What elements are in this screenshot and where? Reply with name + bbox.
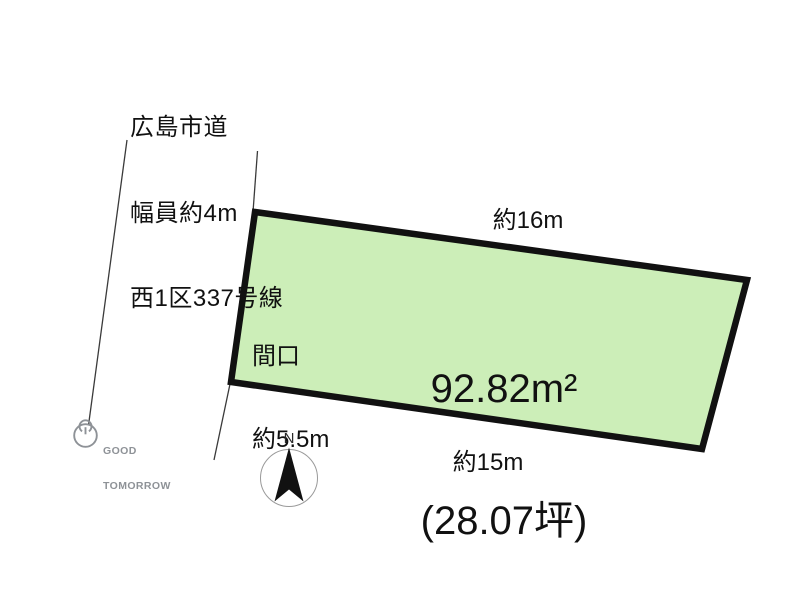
good-tomorrow-logo-icon — [74, 420, 97, 446]
land-plot-diagram: 広島市道 幅員約4m 西1区337号線 約16m 間口 約5.5m 92.82m… — [0, 0, 800, 589]
logo-text: GOOD TOMORROW — [103, 423, 171, 515]
top-dimension-label: 約16m — [448, 200, 608, 235]
road-label-line2: 幅員約4m — [130, 200, 283, 229]
plot-area-m2: 92.82m² — [354, 367, 654, 411]
frontage-label-block: 間口 約5.5m — [252, 288, 329, 508]
plot-area-label: 92.82m² (28.07坪) — [354, 279, 654, 589]
logo-text-line2: TOMORROW — [103, 481, 171, 493]
bottom-dimension-label: 約15m — [408, 442, 568, 477]
road-edge-line-left — [88, 140, 127, 429]
frontage-label: 間口 — [252, 343, 329, 371]
north-label: N — [277, 430, 301, 447]
plot-area-tsubo: (28.07坪) — [354, 499, 654, 543]
road-edge-line-lower-right — [214, 384, 230, 460]
logo-text-line1: GOOD — [103, 446, 171, 458]
road-label-line1: 広島市道 — [130, 114, 283, 143]
